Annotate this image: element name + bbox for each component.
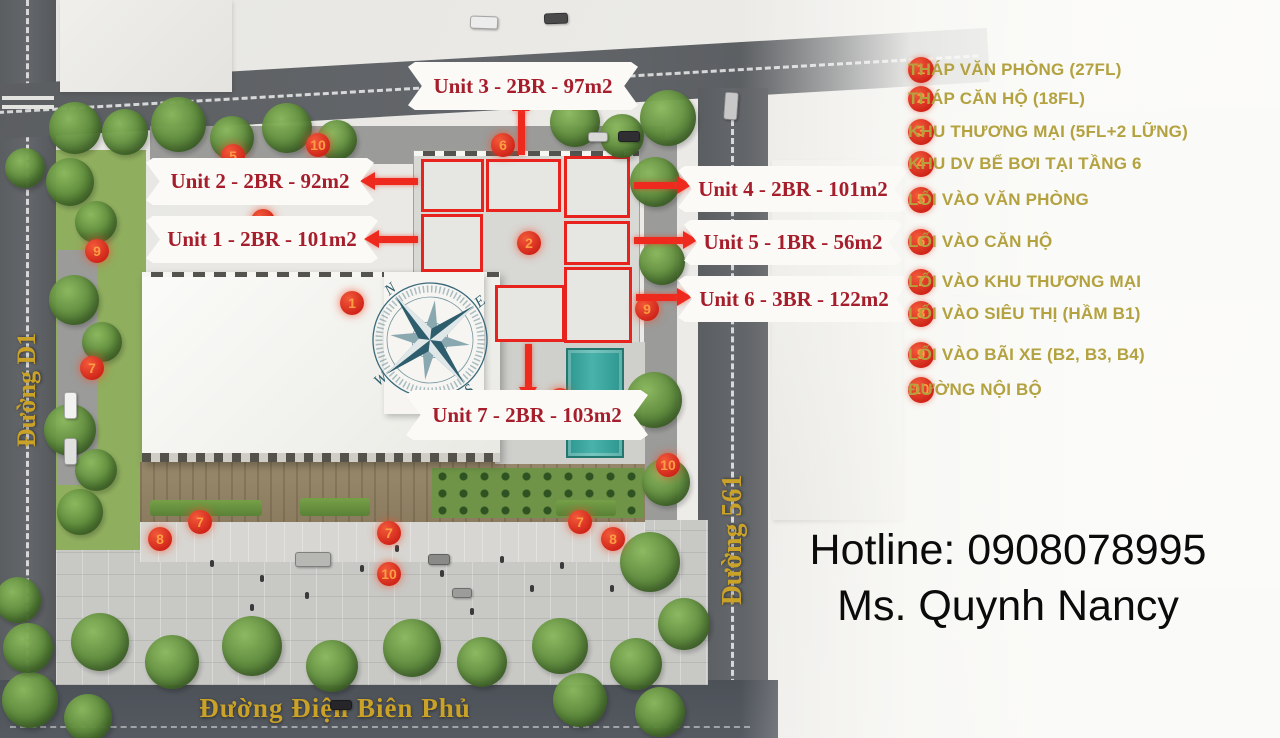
tree-icon bbox=[49, 275, 99, 325]
unit-arrow bbox=[518, 110, 525, 155]
plan-marker-8: 8 bbox=[148, 527, 172, 551]
legend-label: ĐƯỜNG NỘI BỘ bbox=[908, 380, 1042, 400]
tree-icon bbox=[639, 239, 685, 285]
car-icon bbox=[428, 554, 450, 565]
unit-banner-unit-4: Unit 4 - 2BR - 101m2 bbox=[678, 166, 908, 212]
tree-icon bbox=[658, 598, 710, 650]
car-icon bbox=[452, 588, 472, 598]
car-icon bbox=[330, 700, 352, 710]
hedge bbox=[300, 498, 370, 516]
unit-arrow bbox=[636, 294, 678, 301]
hotline-number: Hotline: 0908078995 bbox=[768, 522, 1248, 578]
tree-icon bbox=[145, 635, 199, 689]
legend-label: KHU DV BỂ BƠI TẠI TẦNG 6 bbox=[908, 154, 1142, 174]
tree-icon bbox=[553, 673, 607, 727]
tree-icon bbox=[5, 148, 45, 188]
legend-label: LỐI VÀO SIÊU THỊ (HẦM B1) bbox=[908, 304, 1141, 324]
tree-icon bbox=[3, 623, 53, 673]
person-dot bbox=[560, 562, 564, 569]
car-icon bbox=[470, 16, 498, 30]
person-dot bbox=[210, 560, 214, 567]
plan-marker-10: 10 bbox=[306, 133, 330, 157]
unit-banner-label: Unit 2 - 2BR - 92m2 bbox=[170, 169, 349, 194]
tree-icon bbox=[57, 489, 103, 535]
legend-label: THÁP CĂN HỘ (18FL) bbox=[908, 89, 1085, 109]
unit-banner-label: Unit 7 - 2BR - 103m2 bbox=[432, 403, 622, 428]
tree-icon bbox=[71, 613, 129, 671]
tree-icon bbox=[635, 687, 685, 737]
legend-label: LỐI VÀO CĂN HỘ bbox=[908, 232, 1052, 252]
unit-arrow bbox=[634, 237, 684, 244]
car-icon bbox=[64, 392, 77, 419]
person-dot bbox=[470, 608, 474, 615]
car-icon bbox=[544, 13, 568, 25]
car-icon bbox=[618, 131, 640, 142]
unit-banner-unit-2: Unit 2 - 2BR - 92m2 bbox=[146, 158, 374, 205]
unit-banner-label: Unit 3 - 2BR - 97m2 bbox=[433, 74, 612, 99]
plan-marker-7: 7 bbox=[188, 510, 212, 534]
unit-arrow bbox=[374, 178, 418, 185]
plan-marker-10: 10 bbox=[656, 453, 680, 477]
person-dot bbox=[250, 604, 254, 611]
plan-marker-8: 8 bbox=[601, 527, 625, 551]
plan-marker-7: 7 bbox=[80, 356, 104, 380]
person-dot bbox=[305, 592, 309, 599]
street-label-d1: Đường D1 bbox=[12, 333, 42, 448]
person-dot bbox=[530, 585, 534, 592]
unit-outline bbox=[564, 221, 630, 265]
legend-label: THÁP VĂN PHÒNG (27FL) bbox=[908, 60, 1122, 80]
plan-marker-1: 1 bbox=[340, 291, 364, 315]
unit-banner-label: Unit 6 - 3BR - 122m2 bbox=[699, 287, 889, 312]
legend-label: LỐI VÀO BÃI XE (B2, B3, B4) bbox=[908, 345, 1145, 365]
plan-marker-10: 10 bbox=[377, 562, 401, 586]
unit-outline bbox=[564, 267, 632, 343]
plan-marker-9: 9 bbox=[85, 239, 109, 263]
unit-outline bbox=[421, 159, 484, 212]
unit-arrow bbox=[634, 182, 678, 189]
crosswalk bbox=[2, 96, 54, 114]
contact-block: Hotline: 0908078995 Ms. Quynh Nancy bbox=[768, 522, 1248, 634]
tree-icon bbox=[610, 638, 662, 690]
person-dot bbox=[395, 545, 399, 552]
agent-name: Ms. Quynh Nancy bbox=[768, 578, 1248, 634]
car-icon bbox=[588, 132, 608, 142]
tree-icon bbox=[46, 158, 94, 206]
tree-icon bbox=[620, 532, 680, 592]
tree-icon bbox=[532, 618, 588, 674]
tree-icon bbox=[306, 640, 358, 692]
legend-label: LỐI VÀO VĂN PHÒNG bbox=[908, 190, 1089, 210]
plan-marker-7: 7 bbox=[568, 510, 592, 534]
unit-banner-label: Unit 4 - 2BR - 101m2 bbox=[698, 177, 888, 202]
plan-marker-6: 6 bbox=[491, 133, 515, 157]
person-dot bbox=[610, 585, 614, 592]
unit-banner-unit-5: Unit 5 - 1BR - 56m2 bbox=[684, 220, 902, 265]
unit-banner-label: Unit 5 - 1BR - 56m2 bbox=[703, 230, 882, 255]
unit-banner-unit-6: Unit 6 - 3BR - 122m2 bbox=[678, 276, 910, 322]
tree-icon bbox=[383, 619, 441, 677]
tree-icon bbox=[262, 103, 312, 153]
unit-outline bbox=[564, 156, 630, 218]
person-dot bbox=[440, 570, 444, 577]
tree-icon bbox=[151, 97, 206, 152]
tree-icon bbox=[640, 90, 696, 146]
tree-icon bbox=[49, 102, 101, 154]
balcony-hatch bbox=[142, 453, 500, 462]
tree-icon bbox=[75, 201, 117, 243]
adjacent-building bbox=[60, 0, 232, 92]
unit-arrow bbox=[378, 236, 418, 243]
unit-banner-unit-7: Unit 7 - 2BR - 103m2 bbox=[406, 390, 648, 440]
tree-icon bbox=[222, 616, 282, 676]
person-dot bbox=[260, 575, 264, 582]
tree-icon bbox=[102, 109, 148, 155]
tree-icon bbox=[75, 449, 117, 491]
tree-icon bbox=[64, 694, 112, 738]
person-dot bbox=[360, 565, 364, 572]
tree-icon bbox=[457, 637, 507, 687]
car-icon bbox=[723, 92, 739, 121]
person-dot bbox=[500, 556, 504, 563]
legend-label: LỐI VÀO KHU THƯƠNG MẠI bbox=[908, 272, 1141, 292]
legend-label: KHU THƯƠNG MẠI (5FL+2 LỮNG) bbox=[908, 122, 1188, 142]
site-plan: N E S W Đường D1 Đường 561 Đường Điện Bi… bbox=[0, 0, 1280, 738]
car-icon bbox=[64, 438, 77, 465]
unit-outline bbox=[486, 159, 561, 212]
plan-marker-7: 7 bbox=[377, 521, 401, 545]
car-icon bbox=[295, 552, 331, 567]
unit-banner-label: Unit 1 - 2BR - 101m2 bbox=[167, 227, 357, 252]
tree-icon bbox=[2, 672, 58, 728]
unit-banner-unit-3: Unit 3 - 2BR - 97m2 bbox=[408, 62, 638, 110]
plan-marker-2: 2 bbox=[517, 231, 541, 255]
unit-arrow bbox=[525, 344, 532, 388]
unit-banner-unit-1: Unit 1 - 2BR - 101m2 bbox=[146, 216, 378, 263]
